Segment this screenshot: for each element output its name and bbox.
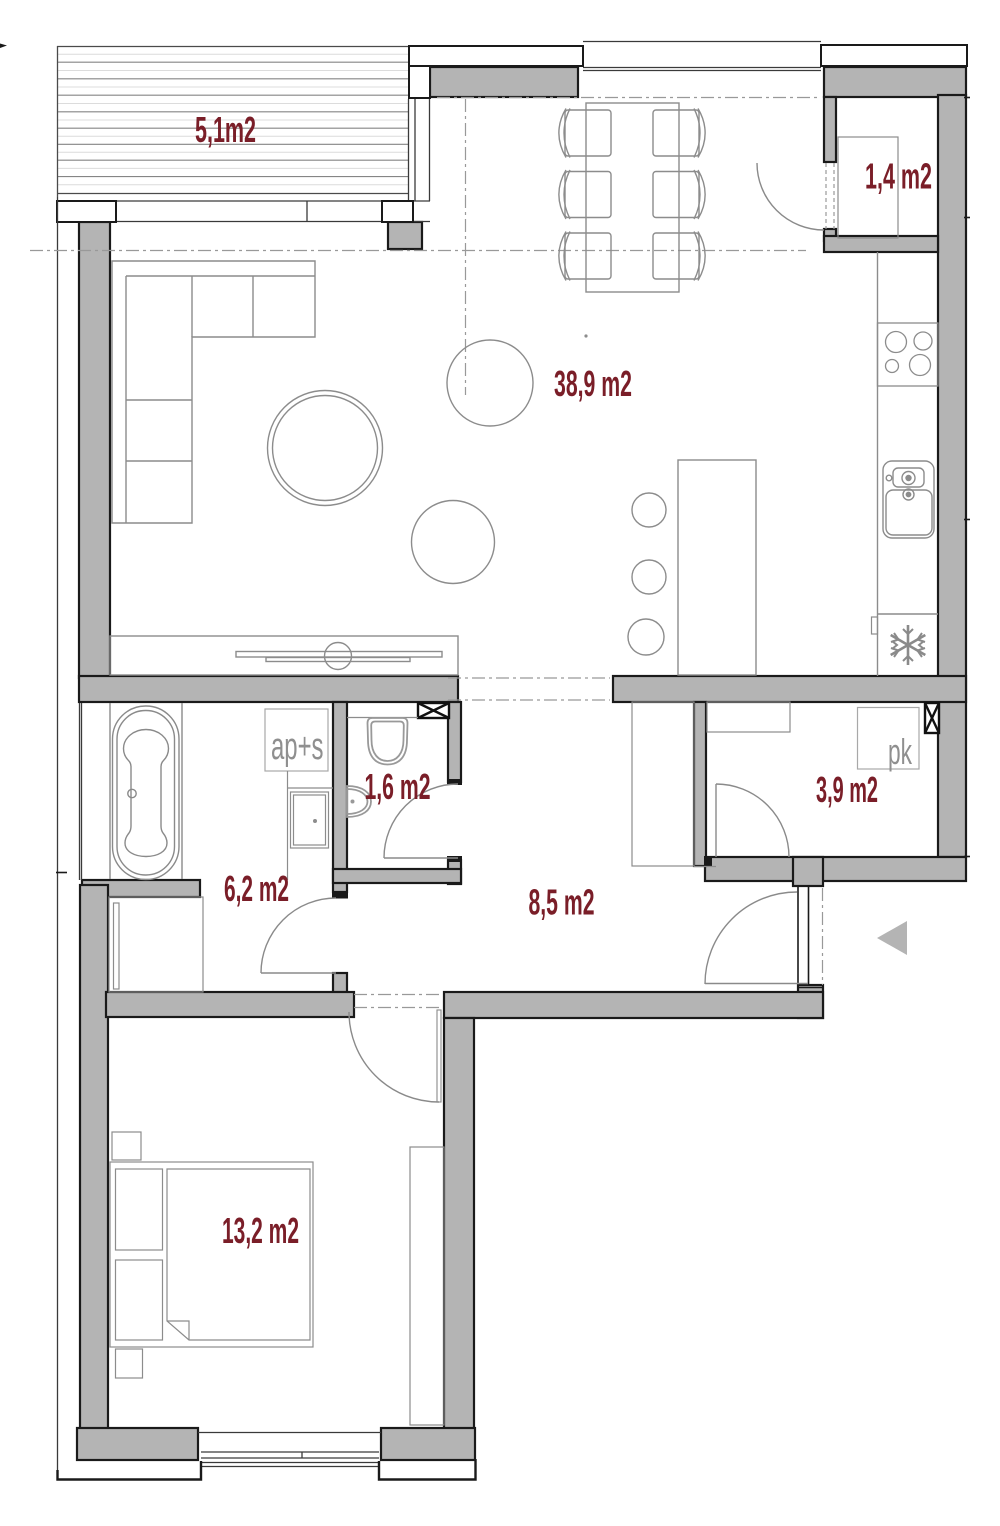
svg-text:6,2 m2: 6,2 m2 [224, 868, 289, 909]
svg-text:pk: pk [888, 731, 913, 772]
svg-text:5,1m2: 5,1m2 [195, 109, 256, 150]
svg-text:8,5 m2: 8,5 m2 [529, 882, 595, 923]
svg-text:ap+s: ap+s [271, 726, 324, 768]
svg-text:13,2 m2: 13,2 m2 [222, 1210, 299, 1251]
svg-text:3,9 m2: 3,9 m2 [816, 769, 878, 810]
svg-text:38,9 m2: 38,9 m2 [554, 363, 632, 404]
svg-text:1,6 m2: 1,6 m2 [365, 766, 431, 807]
svg-text:1,4 m2: 1,4 m2 [865, 156, 932, 197]
